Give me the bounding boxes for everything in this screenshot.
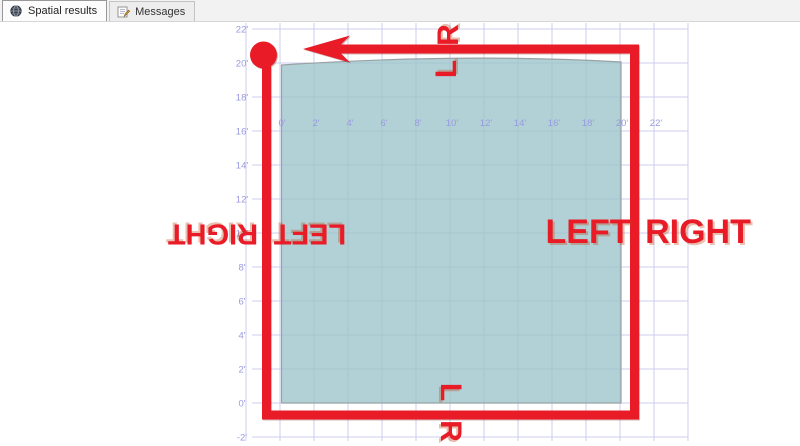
annotation-bottom-outside-label: R xyxy=(435,420,465,442)
x-tick-label: 18' xyxy=(582,118,595,129)
x-tick-label: 6' xyxy=(380,118,387,129)
annotation-left-inside-label: LEFT xyxy=(274,219,347,248)
y-tick-label: 12' xyxy=(236,195,249,206)
y-tick-label: 8' xyxy=(238,263,245,274)
y-tick-label: 2' xyxy=(238,365,245,376)
x-tick-label: 20' xyxy=(616,118,629,129)
results-tab-bar: Spatial results Messages xyxy=(0,0,800,22)
y-tick-label: 14' xyxy=(236,161,249,172)
y-tick-label: 6' xyxy=(238,297,245,308)
y-tick-label: -2' xyxy=(237,433,247,444)
tab-label: Messages xyxy=(135,6,185,18)
globe-icon xyxy=(10,5,23,17)
tab-label: Spatial results xyxy=(28,5,97,17)
x-tick-label: 8' xyxy=(414,118,421,129)
x-tick-label: 14' xyxy=(514,118,527,129)
x-tick-label: 0' xyxy=(278,118,285,129)
annotation-top-outside-label: R xyxy=(434,24,464,46)
x-tick-label: 16' xyxy=(548,118,561,129)
annotation-right-outside-label: RIGHT xyxy=(645,215,751,249)
spatial-results-pane: Spatial results Messages 22'20'18'16'14'… xyxy=(0,0,800,446)
tab-spatial-results[interactable]: Spatial results xyxy=(2,0,107,21)
y-tick-label: 22' xyxy=(236,25,249,36)
x-tick-label: 22' xyxy=(650,118,663,129)
tab-messages[interactable]: Messages xyxy=(109,1,195,21)
path-bottom-edge xyxy=(262,411,639,420)
annotation-top-inside-label: L xyxy=(432,60,462,78)
annotation-left-outside-label: RIGHT xyxy=(168,219,258,248)
y-tick-label: 0' xyxy=(238,399,245,410)
y-tick-label: 20' xyxy=(236,59,249,70)
messages-icon xyxy=(117,6,130,18)
x-tick-label: 2' xyxy=(312,118,319,129)
annotation-right-inside-label: LEFT xyxy=(546,215,631,249)
y-tick-label: 16' xyxy=(236,127,249,138)
path-right-edge xyxy=(630,45,639,420)
path-left-edge xyxy=(262,55,271,420)
x-tick-label: 4' xyxy=(346,118,353,129)
y-tick-label: 18' xyxy=(236,93,249,104)
y-tick-label: 4' xyxy=(238,331,245,342)
x-tick-label: 10' xyxy=(446,118,459,129)
annotation-bottom-inside-label: L xyxy=(435,383,465,401)
x-tick-label: 12' xyxy=(480,118,493,129)
